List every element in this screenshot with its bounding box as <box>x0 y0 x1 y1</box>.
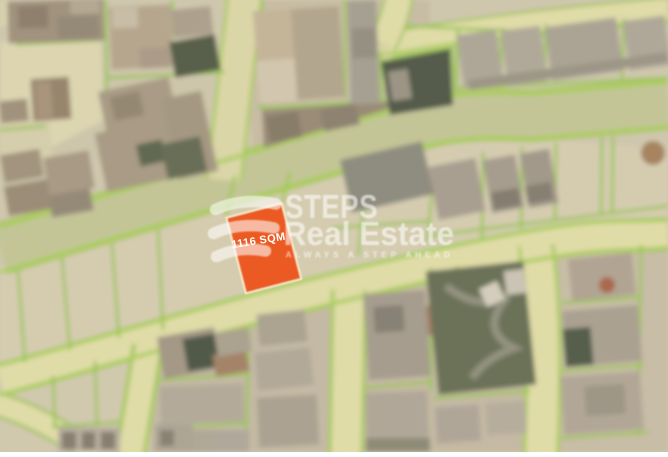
svg-text:Real Estate: Real Estate <box>284 215 455 252</box>
svg-text:ALWAYS A STEP AHEAD: ALWAYS A STEP AHEAD <box>286 250 454 260</box>
